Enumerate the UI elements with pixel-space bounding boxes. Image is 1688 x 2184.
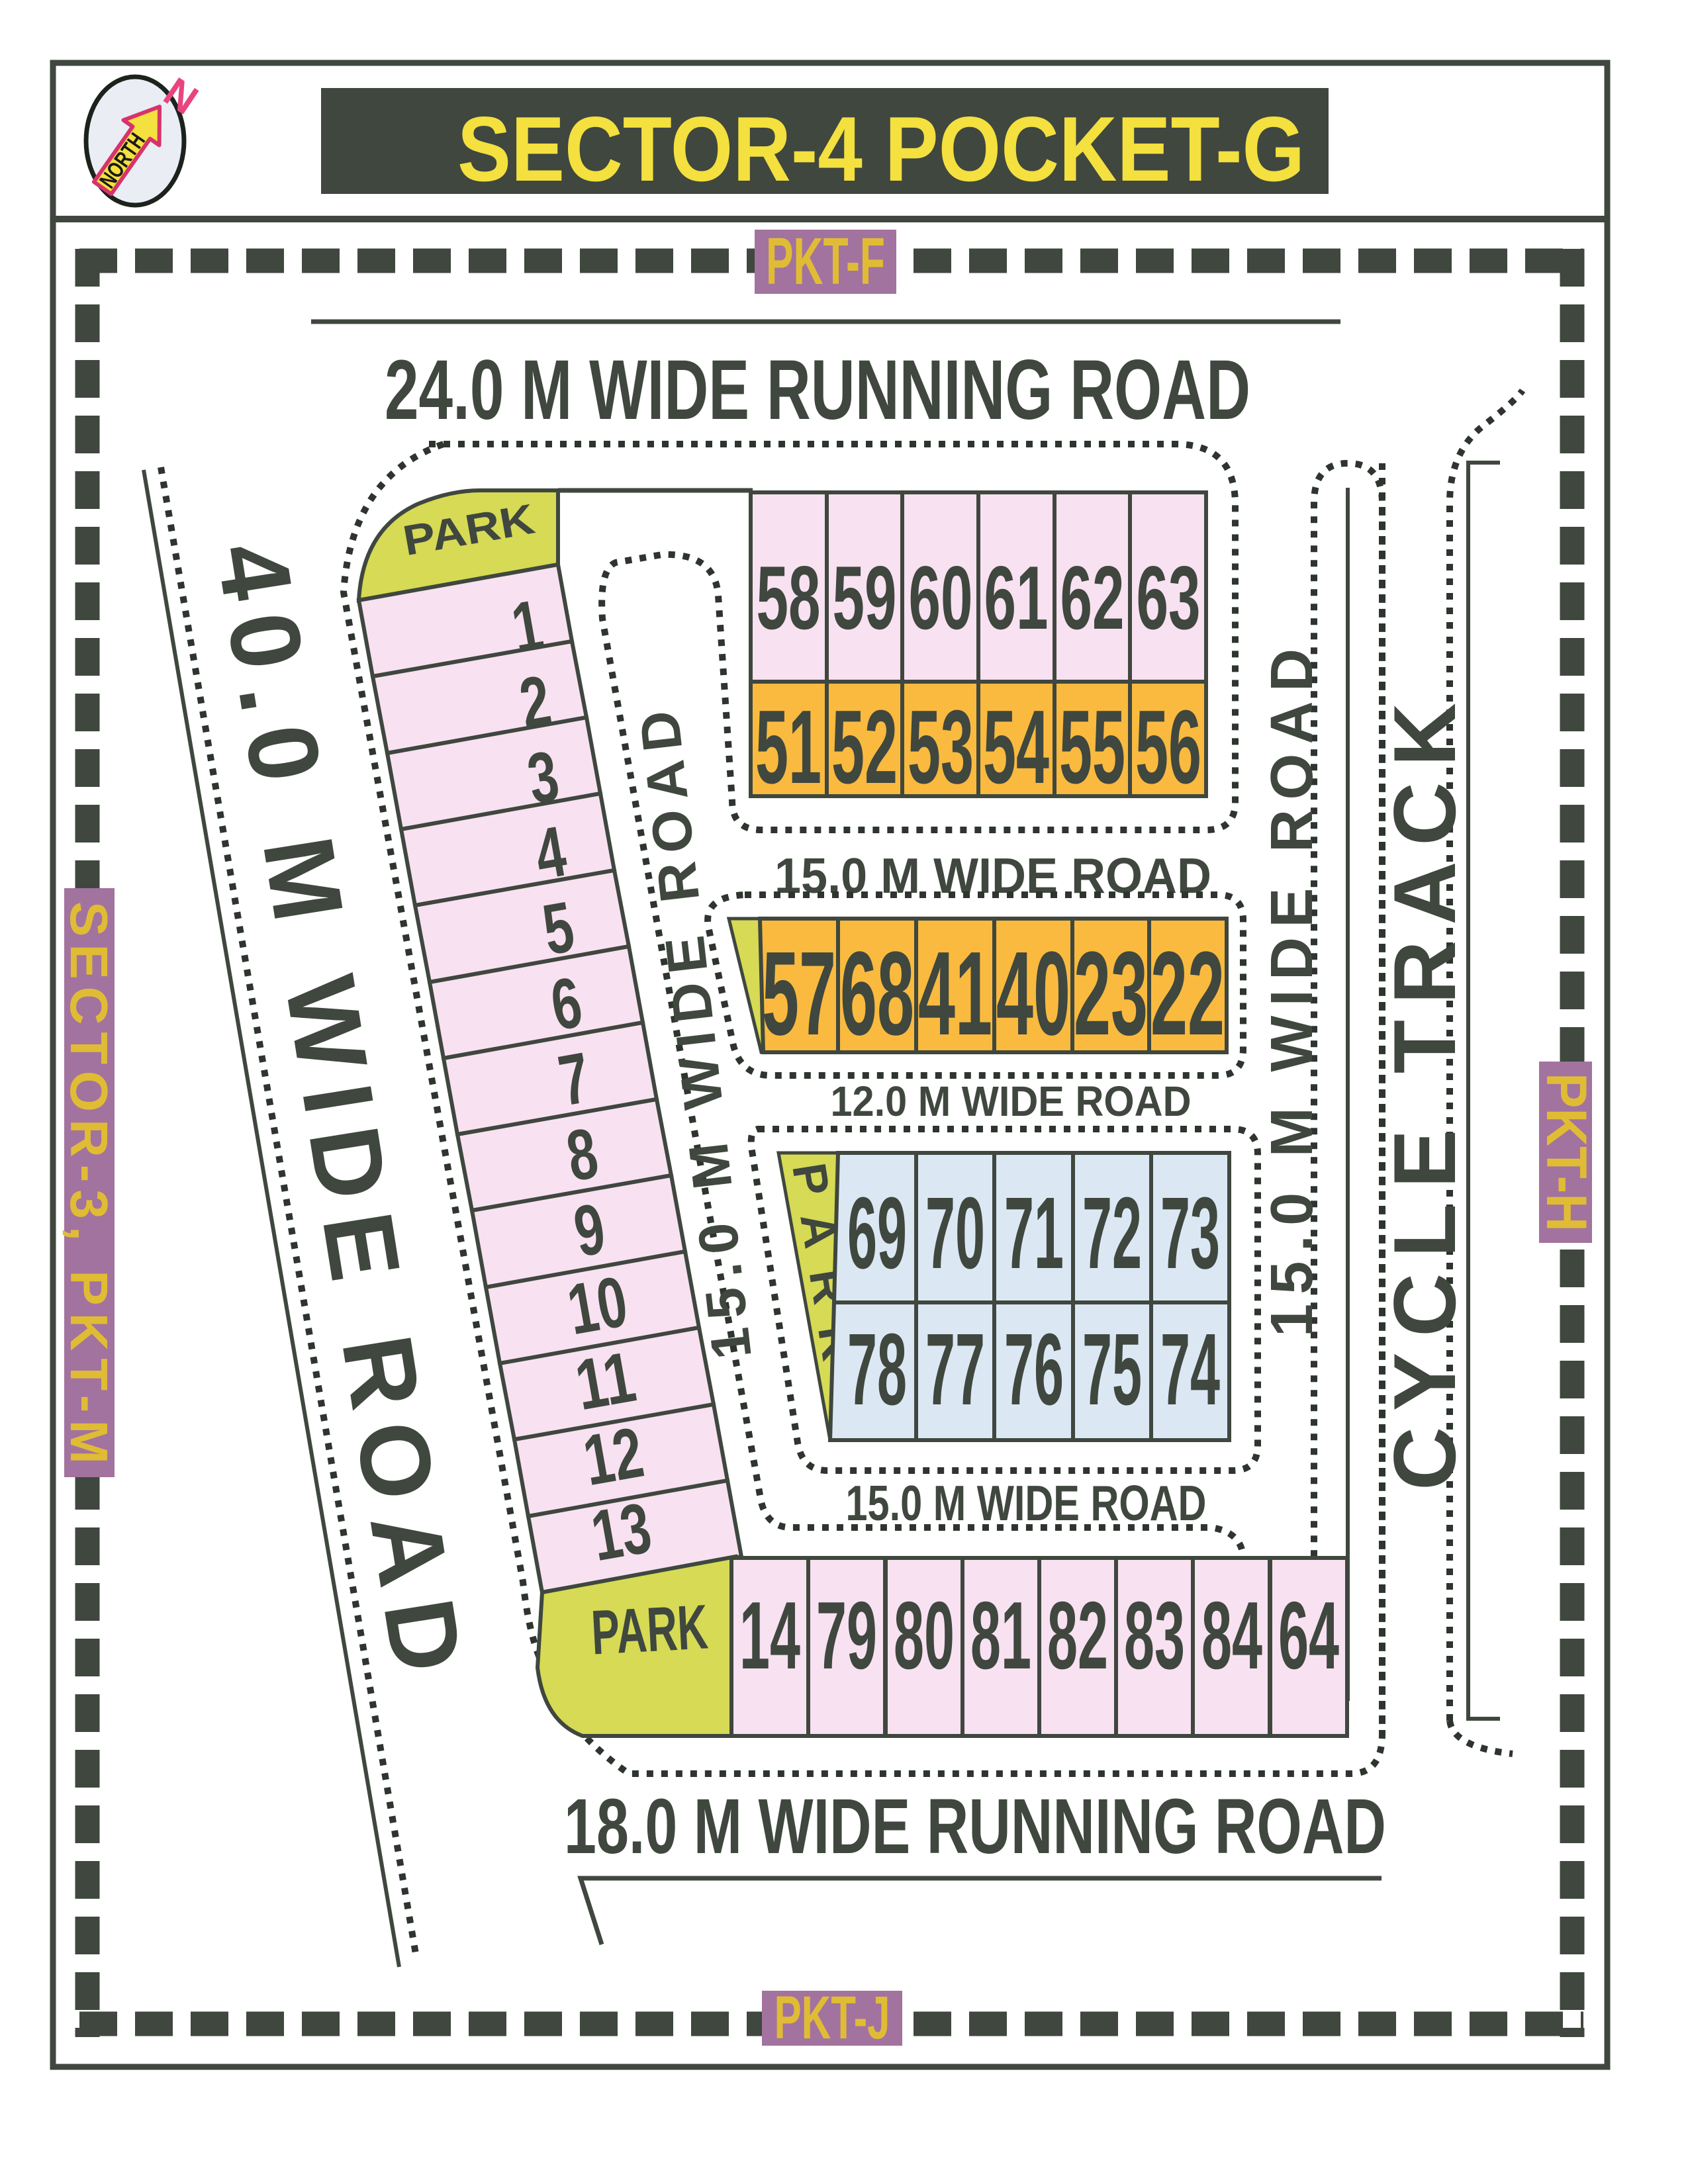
svg-text:71: 71	[1004, 1176, 1064, 1290]
svg-text:83: 83	[1124, 1582, 1185, 1689]
svg-text:22: 22	[1150, 927, 1225, 1060]
svg-text:PARK: PARK	[590, 1592, 710, 1668]
svg-text:54: 54	[983, 689, 1049, 805]
svg-text:72: 72	[1082, 1176, 1142, 1290]
svg-text:58: 58	[757, 547, 821, 648]
svg-text:53: 53	[908, 689, 974, 805]
svg-text:57: 57	[762, 927, 836, 1060]
svg-text:82: 82	[1047, 1582, 1108, 1689]
svg-text:SECTOR-4 POCKET-G: SECTOR-4 POCKET-G	[457, 98, 1305, 201]
svg-text:52: 52	[831, 689, 898, 805]
svg-text:63: 63	[1137, 547, 1201, 648]
svg-text:62: 62	[1060, 547, 1125, 648]
svg-text:55: 55	[1059, 689, 1125, 805]
svg-text:73: 73	[1160, 1176, 1220, 1290]
svg-text:80: 80	[894, 1582, 955, 1689]
svg-text:15.0 M WIDE ROAD: 15.0 M WIDE ROAD	[846, 1475, 1207, 1531]
svg-text:69: 69	[847, 1176, 907, 1290]
svg-text:PKT-H: PKT-H	[1534, 1073, 1598, 1232]
svg-text:84: 84	[1201, 1582, 1262, 1689]
svg-text:60: 60	[909, 547, 973, 648]
svg-text:18.0 M WIDE RUNNING ROAD: 18.0 M WIDE RUNNING ROAD	[564, 1783, 1386, 1870]
svg-text:24.0 M WIDE RUNNING ROAD: 24.0 M WIDE RUNNING ROAD	[385, 343, 1250, 437]
svg-text:CYCLE TRACK: CYCLE TRACK	[1376, 703, 1474, 1490]
svg-text:59: 59	[833, 547, 897, 648]
svg-text:56: 56	[1135, 689, 1201, 805]
svg-text:74: 74	[1160, 1312, 1220, 1426]
svg-text:70: 70	[925, 1176, 985, 1290]
svg-text:40: 40	[996, 927, 1070, 1060]
svg-text:68: 68	[840, 927, 914, 1060]
svg-text:51: 51	[755, 689, 821, 805]
svg-text:14: 14	[739, 1582, 800, 1689]
svg-text:64: 64	[1278, 1582, 1339, 1689]
svg-text:61: 61	[984, 547, 1049, 648]
svg-text:81: 81	[970, 1582, 1031, 1689]
svg-text:77: 77	[925, 1312, 985, 1426]
svg-text:79: 79	[816, 1582, 877, 1689]
svg-text:75: 75	[1082, 1312, 1142, 1426]
svg-text:PKT-F: PKT-F	[766, 224, 885, 298]
svg-text:76: 76	[1004, 1312, 1064, 1426]
svg-text:12.0 M WIDE ROAD: 12.0 M WIDE ROAD	[831, 1077, 1192, 1125]
svg-text:23: 23	[1074, 927, 1148, 1060]
svg-text:PKT-J: PKT-J	[774, 1984, 890, 2052]
svg-text:78: 78	[847, 1312, 907, 1426]
svg-text:41: 41	[918, 927, 992, 1060]
